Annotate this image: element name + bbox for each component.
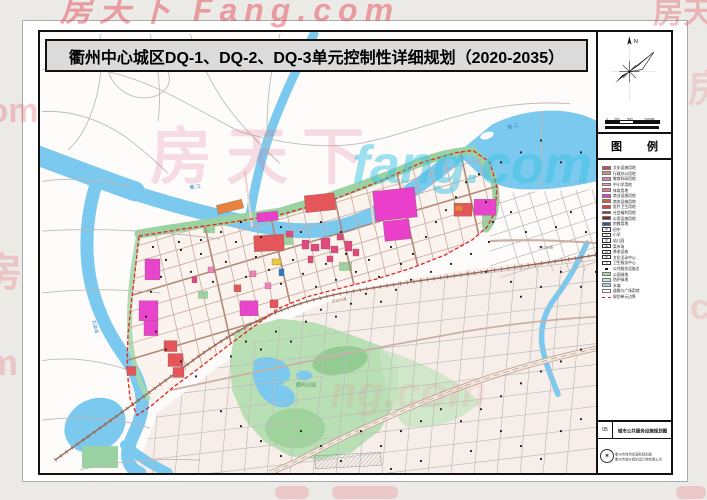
facility-point — [340, 231, 342, 233]
facility-point — [225, 261, 227, 263]
scale-tick: 1000M — [644, 117, 654, 120]
landuse-block — [302, 240, 309, 249]
facility-point — [390, 246, 392, 248]
facility-point — [165, 349, 167, 351]
legend-label: 中小学用地 — [613, 182, 632, 187]
legend-swatch — [602, 199, 611, 203]
landuse-block — [311, 244, 319, 251]
watermark-blob — [332, 486, 398, 499]
legend-swatch — [602, 267, 611, 271]
legend-label: 养老设施 — [613, 249, 628, 254]
landuse-block — [144, 321, 158, 336]
facility-point — [165, 259, 167, 261]
facility-point — [275, 331, 277, 333]
facility-point — [195, 375, 197, 377]
scale-bar: 0 200 500 1000M — [605, 114, 661, 130]
facility-point — [260, 236, 262, 238]
facility-point — [560, 361, 562, 363]
legend-swatch — [602, 211, 611, 215]
facility-point — [520, 445, 522, 447]
scale-bar-solid — [605, 126, 659, 129]
facility-point — [570, 211, 572, 213]
landuse-block — [321, 238, 330, 249]
facility-point — [555, 226, 557, 228]
facility-point — [280, 226, 282, 228]
facility-point — [520, 151, 522, 153]
facility-point — [420, 460, 422, 462]
facility-point — [245, 341, 247, 343]
watermark-left-c: m — [0, 342, 18, 384]
legend-label: 商业设施用地 — [613, 193, 636, 198]
facility-point — [180, 249, 182, 251]
landuse-block — [265, 283, 271, 289]
facility-point — [368, 259, 370, 261]
legend-swatch — [602, 183, 611, 187]
legend-swatch — [602, 188, 611, 192]
map-label: 鹿鸣公园 — [296, 381, 316, 388]
legend-swatch — [602, 171, 611, 175]
facility-point — [245, 276, 247, 278]
facility-point — [560, 430, 562, 432]
facility-point — [355, 271, 357, 273]
facility-point — [420, 420, 422, 422]
facility-point — [520, 382, 522, 384]
facility-point — [510, 281, 512, 283]
landuse-block — [208, 267, 214, 273]
facility-point — [360, 430, 362, 432]
map-title: 衢州中心城区DQ-1、DQ-2、DQ-3单元控制性详细规划（2020-2035） — [45, 39, 588, 72]
facility-point — [190, 271, 192, 273]
facility-point — [585, 231, 587, 233]
scale-tick: 0 — [606, 117, 608, 120]
landuse-block — [272, 259, 281, 265]
landuse-block — [327, 256, 333, 262]
facility-point — [335, 279, 337, 281]
facility-point — [580, 418, 582, 420]
facility-point — [450, 263, 452, 265]
facility-point — [345, 253, 347, 255]
legend-swatch: 幼 — [602, 238, 611, 242]
facility-point — [390, 468, 392, 470]
facility-point — [540, 140, 542, 142]
landuse-block — [240, 301, 258, 316]
facility-point — [160, 276, 162, 278]
facility-point — [155, 331, 157, 333]
scale-tick: 200 — [613, 117, 619, 120]
legend-row: 规划单元边界 — [602, 294, 670, 300]
legend-swatch — [602, 194, 611, 198]
facility-point — [240, 221, 242, 223]
facility-point — [235, 241, 237, 243]
landuse-block — [308, 256, 313, 263]
landuse-block — [286, 231, 293, 237]
legend-swatch — [602, 216, 611, 220]
title-block: 05 城市公共服务设施规划图 ✶ 衢州市自然资源和规划局 衢州市城乡规划设计院有… — [598, 420, 671, 473]
facility-point — [440, 408, 442, 410]
facility-point — [200, 239, 202, 241]
facility-point — [280, 283, 282, 285]
compass-box: N 0 200 500 — [598, 32, 671, 132]
landuse-block — [192, 277, 197, 283]
map-label: 三江东路 — [538, 244, 554, 250]
legend-label: 规划单元边界 — [613, 294, 636, 299]
watermark-blob — [676, 486, 706, 499]
facility-point — [395, 289, 397, 291]
map-sidebar: N 0 200 500 — [596, 32, 671, 473]
landuse-block — [139, 301, 158, 321]
landuse-block — [270, 300, 278, 308]
landuse-block — [345, 241, 352, 251]
stamp-line-1: 衢州市自然资源和规划局 — [615, 452, 638, 454]
facility-point — [212, 281, 214, 283]
facility-point — [150, 291, 152, 293]
legend-swatch: 文 — [602, 255, 611, 259]
facility-point — [315, 286, 317, 288]
facility-point — [500, 161, 502, 163]
facility-point — [340, 460, 342, 462]
legend-swatch — [602, 166, 611, 170]
facility-point — [220, 231, 222, 233]
facility-point — [305, 321, 307, 323]
facility-point — [230, 356, 232, 358]
stamp-logo-icon: ✶ — [600, 449, 614, 463]
facility-point — [412, 253, 414, 255]
facility-point — [152, 246, 154, 248]
facility-point — [470, 253, 472, 255]
facility-point — [560, 271, 562, 273]
watermark-right-a: 房 — [688, 58, 707, 113]
planning-map: 衢 江衢 江石梁溪鹿鸣公园白云大道三江东路 — [40, 32, 596, 473]
scale-tick: 500 — [627, 117, 633, 120]
facility-point — [580, 286, 582, 288]
facility-point — [335, 316, 337, 318]
facility-point — [300, 430, 302, 432]
facility-point — [400, 430, 402, 432]
facility-point — [500, 395, 502, 397]
legend-swatch — [602, 177, 611, 181]
legend-swatch: 卫 — [602, 261, 611, 265]
landuse-block — [173, 367, 184, 377]
facility-point — [510, 211, 512, 213]
facility-point — [400, 263, 402, 265]
facility-point — [480, 408, 482, 410]
facility-point — [200, 253, 202, 255]
legend-swatch: 养 — [602, 250, 611, 254]
sheet-name: 城市公共服务设施规划图 — [613, 422, 671, 438]
facility-point — [488, 241, 490, 243]
watermark-left-b: 房 — [0, 240, 22, 298]
facility-point — [410, 279, 412, 281]
facility-point — [540, 286, 542, 288]
facility-point — [280, 455, 282, 457]
legend-swatch: 小 — [602, 233, 611, 237]
facility-point — [380, 445, 382, 447]
facility-point — [470, 450, 472, 452]
facility-point — [500, 430, 502, 432]
facility-point — [378, 276, 380, 278]
map-panel: 衢州中心城区DQ-1、DQ-2、DQ-3单元控制性详细规划（2020-2035） — [40, 32, 596, 473]
facility-point — [435, 221, 437, 223]
sheet-number: 05 — [598, 422, 613, 438]
facility-point — [290, 341, 292, 343]
landuse-block — [304, 193, 336, 213]
stamp-line-2: 衢州市城乡规划设计院有限公司 — [615, 457, 638, 459]
facility-point — [560, 161, 562, 163]
facility-point — [300, 231, 302, 233]
facility-point — [302, 273, 304, 275]
landuse-block — [250, 271, 256, 277]
facility-point — [465, 181, 467, 183]
legend-swatch — [602, 283, 611, 287]
legend-title: 图 例 — [598, 132, 671, 160]
facility-point — [445, 209, 447, 211]
facility-point — [540, 458, 542, 460]
facility-point — [455, 196, 457, 198]
facility-point — [380, 301, 382, 303]
facility-point — [320, 221, 322, 223]
facility-point — [365, 293, 367, 295]
facility-point — [260, 349, 262, 351]
sheet-frame: 衢州中心城区DQ-1、DQ-2、DQ-3单元控制性详细规划（2020-2035） — [38, 30, 673, 475]
landuse-block — [145, 259, 160, 280]
sheet-row: 05 城市公共服务设施规划图 — [598, 422, 671, 439]
legend-label: 公共服务设施点 — [613, 266, 639, 271]
facility-point — [350, 303, 352, 305]
north-label: N — [634, 39, 638, 45]
facility-point — [430, 271, 432, 273]
legend-label: 宗教用地 — [613, 221, 628, 226]
stamp-row: ✶ 衢州市自然资源和规划局 衢州市城乡规划设计院有限公司 — [598, 439, 671, 473]
map-label: 衢 江 — [189, 183, 201, 191]
legend-label: 防护绿地 — [613, 277, 628, 282]
facility-point — [145, 316, 147, 318]
facility-point — [320, 445, 322, 447]
legend-swatch — [602, 297, 611, 298]
legend-swatch: 菜 — [602, 244, 611, 248]
legend-list: 文化设施用地行政办公用地教育科研用地中小学用地体育用地商业设施用地商务设施用地医… — [598, 160, 671, 420]
legend-label: 幼儿园 — [613, 238, 624, 243]
facility-point — [325, 263, 327, 265]
legend-swatch — [602, 205, 611, 209]
facility-point — [525, 231, 527, 233]
legend-label: 社会福利用地 — [613, 210, 636, 215]
facility-point — [255, 256, 257, 258]
landuse-block — [373, 187, 418, 221]
landuse-block — [168, 354, 183, 367]
plan-sheet: 衢州中心城区DQ-1、DQ-2、DQ-3单元控制性详细规划（2020-2035） — [22, 20, 688, 482]
watermark-right-b: c — [690, 286, 707, 328]
landuse-block — [331, 246, 338, 253]
facility-point — [580, 151, 582, 153]
stamp-text: 衢州市自然资源和规划局 衢州市城乡规划设计院有限公司 — [615, 451, 669, 461]
landuse-block — [383, 219, 411, 242]
landuse-block — [254, 234, 285, 251]
legend-swatch — [602, 272, 611, 276]
facility-point — [180, 361, 182, 363]
facility-point — [520, 296, 522, 298]
facility-point — [460, 420, 462, 422]
facility-point — [485, 271, 487, 273]
facility-point — [220, 410, 222, 412]
landuse-block — [234, 285, 241, 292]
legend-swatch — [602, 289, 611, 293]
legend-swatch: 中 — [602, 227, 611, 231]
landuse-block — [127, 366, 136, 375]
legend-swatch — [602, 222, 611, 226]
facility-point — [260, 440, 262, 442]
facility-point — [425, 236, 427, 238]
facility-point — [320, 309, 322, 311]
facility-point — [240, 425, 242, 427]
landuse-block — [353, 249, 359, 256]
legend-label: 道路与广场用地 — [613, 288, 639, 293]
legend-label: 文化设施用地 — [613, 165, 636, 170]
landuse-block — [337, 234, 343, 240]
facility-point — [478, 173, 480, 175]
facility-point — [178, 241, 180, 243]
compass-rose: N — [600, 32, 666, 104]
watermark-blob — [275, 486, 309, 499]
facility-point — [268, 269, 270, 271]
facility-point — [580, 349, 582, 351]
landuse-block — [279, 269, 284, 276]
sheet-name-text: 城市公共服务设施规划图 — [617, 427, 667, 434]
landuse-block — [455, 205, 463, 211]
facility-point — [540, 370, 542, 372]
legend-swatch — [602, 278, 611, 282]
facility-point — [292, 259, 294, 261]
facility-point — [485, 201, 487, 203]
facility-point — [492, 221, 494, 223]
